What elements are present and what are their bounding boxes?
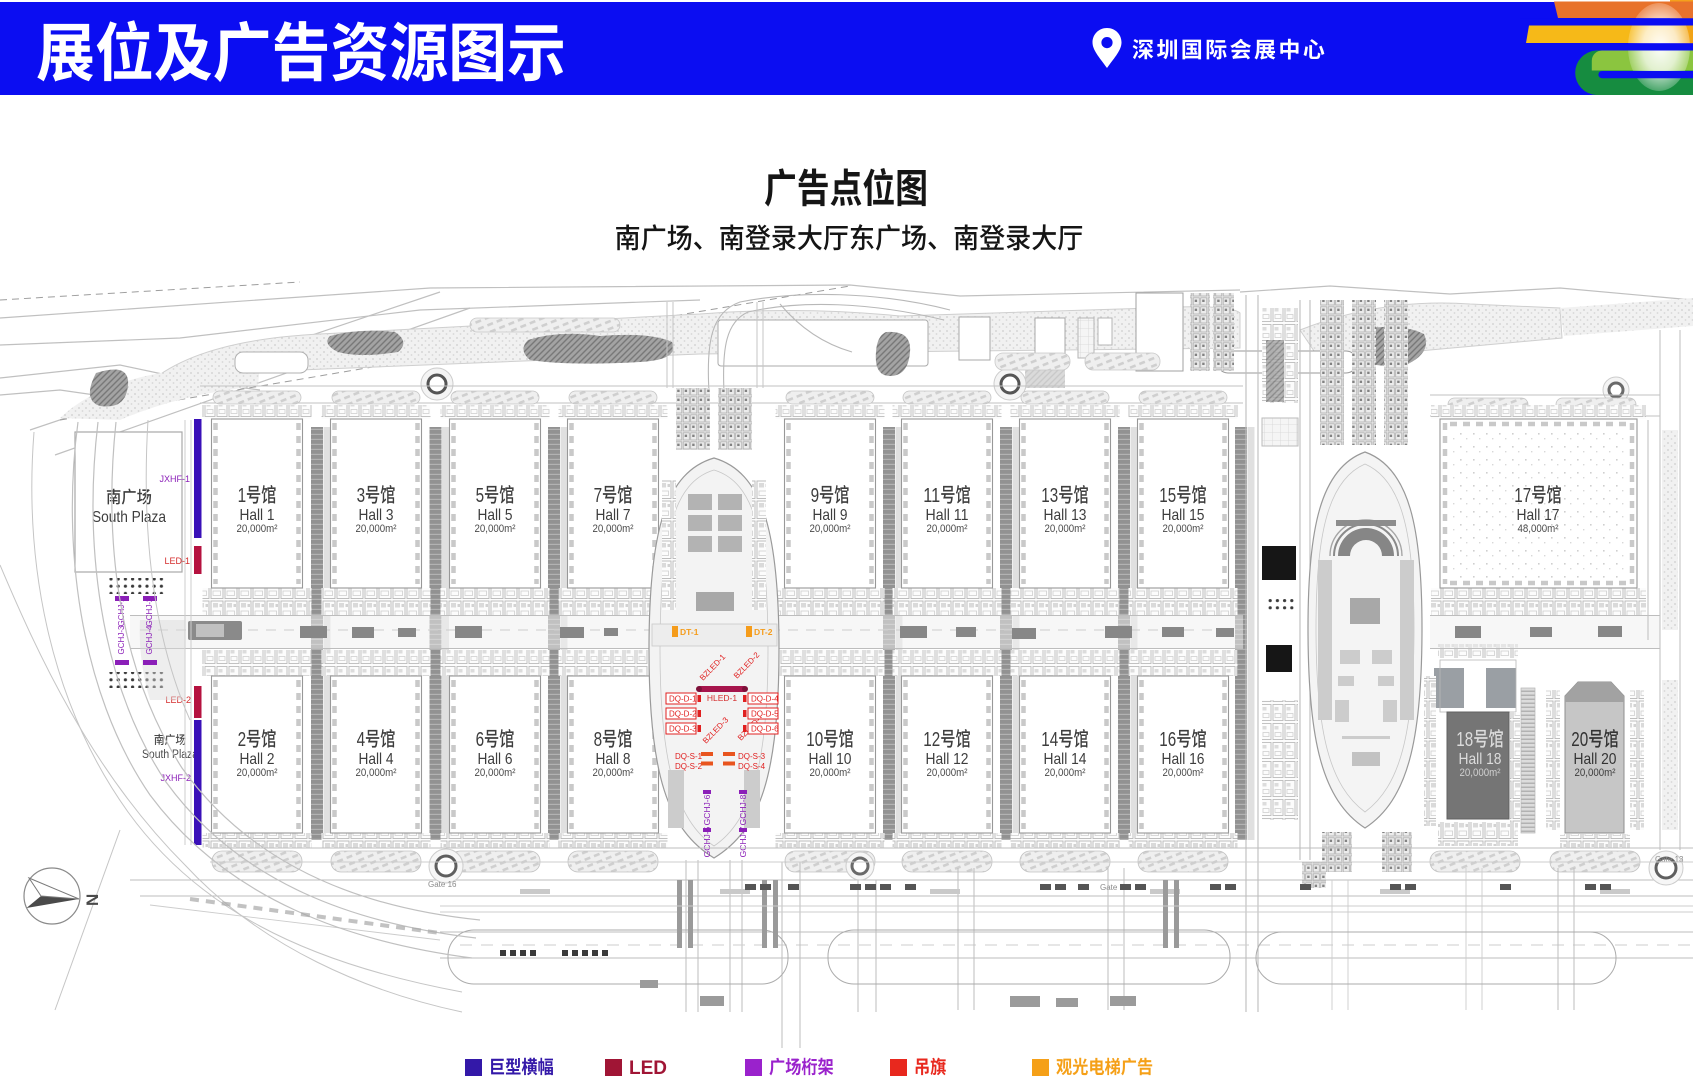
svg-text:7: 7 bbox=[594, 485, 603, 507]
svg-text:Hall 7: Hall 7 bbox=[596, 507, 631, 524]
svg-text:20,000m²: 20,000m² bbox=[356, 523, 397, 535]
svg-text:South Plaza: South Plaza bbox=[92, 509, 166, 526]
svg-text:20,000m²: 20,000m² bbox=[593, 523, 634, 535]
svg-text:Hall 13: Hall 13 bbox=[1044, 507, 1087, 524]
svg-text:20,000m²: 20,000m² bbox=[237, 523, 278, 535]
svg-text:20,000m²: 20,000m² bbox=[927, 523, 968, 535]
svg-text:Gate 16: Gate 16 bbox=[428, 880, 457, 889]
svg-text:GCHJ-8: GCHJ-8 bbox=[738, 794, 748, 825]
svg-text:DQ-D-1: DQ-D-1 bbox=[669, 695, 697, 704]
svg-text:GCHJ-7: GCHJ-7 bbox=[738, 826, 748, 857]
svg-text:DQ-S-3: DQ-S-3 bbox=[738, 752, 766, 761]
svg-text:Hall 8: Hall 8 bbox=[596, 751, 631, 768]
svg-text:Hall 16: Hall 16 bbox=[1162, 751, 1205, 768]
svg-text:South Plaza: South Plaza bbox=[142, 749, 199, 761]
svg-text:20: 20 bbox=[1571, 729, 1588, 751]
svg-text:DQ-D-4: DQ-D-4 bbox=[751, 695, 779, 704]
svg-text:Hall 12: Hall 12 bbox=[926, 751, 969, 768]
svg-text:Hall 5: Hall 5 bbox=[478, 507, 513, 524]
svg-text:20,000m²: 20,000m² bbox=[927, 767, 968, 779]
svg-text:HLED-1: HLED-1 bbox=[707, 693, 738, 703]
svg-text:14: 14 bbox=[1041, 729, 1058, 751]
svg-text:Hall 6: Hall 6 bbox=[478, 751, 513, 768]
svg-text:DQ-S-4: DQ-S-4 bbox=[738, 762, 766, 771]
svg-text:JXHF-1: JXHF-1 bbox=[159, 474, 190, 484]
svg-text:20,000m²: 20,000m² bbox=[1575, 767, 1616, 779]
svg-text:20,000m²: 20,000m² bbox=[237, 767, 278, 779]
svg-text:6: 6 bbox=[476, 729, 485, 751]
svg-text:Hall 2: Hall 2 bbox=[240, 751, 275, 768]
svg-text:N: N bbox=[83, 894, 102, 906]
svg-text:20,000m²: 20,000m² bbox=[356, 767, 397, 779]
svg-text:LED: LED bbox=[629, 1058, 667, 1079]
svg-text:13: 13 bbox=[1041, 485, 1058, 507]
svg-text:DQ-S-2: DQ-S-2 bbox=[675, 762, 703, 771]
svg-text:DQ-D-2: DQ-D-2 bbox=[669, 710, 697, 719]
svg-text:12: 12 bbox=[923, 729, 940, 751]
svg-text:Gate 13: Gate 13 bbox=[1655, 855, 1684, 864]
svg-text:Hall 15: Hall 15 bbox=[1162, 507, 1205, 524]
svg-text:Hall 11: Hall 11 bbox=[926, 507, 969, 524]
svg-text:GCHJ-3: GCHJ-3 bbox=[117, 625, 126, 654]
svg-text:2: 2 bbox=[238, 729, 247, 751]
svg-text:5: 5 bbox=[476, 485, 485, 507]
svg-text:20,000m²: 20,000m² bbox=[810, 523, 851, 535]
svg-text:20,000m²: 20,000m² bbox=[475, 523, 516, 535]
svg-text:9: 9 bbox=[811, 485, 820, 507]
svg-text:Hall 1: Hall 1 bbox=[240, 507, 275, 524]
svg-text:20,000m²: 20,000m² bbox=[593, 767, 634, 779]
svg-text:Hall 20: Hall 20 bbox=[1574, 751, 1617, 768]
svg-text:16: 16 bbox=[1159, 729, 1176, 751]
svg-text:4: 4 bbox=[357, 729, 366, 751]
svg-text:Hall 9: Hall 9 bbox=[813, 507, 848, 524]
svg-text:DQ-D-3: DQ-D-3 bbox=[669, 725, 697, 734]
svg-text:GCHJ-5: GCHJ-5 bbox=[702, 826, 712, 857]
svg-text:20,000m²: 20,000m² bbox=[1460, 767, 1501, 779]
svg-text:DT-2: DT-2 bbox=[754, 627, 773, 637]
svg-text:20,000m²: 20,000m² bbox=[1163, 767, 1204, 779]
svg-text:GCHJ-4: GCHJ-4 bbox=[145, 625, 154, 654]
svg-text:20,000m²: 20,000m² bbox=[475, 767, 516, 779]
svg-text:20,000m²: 20,000m² bbox=[810, 767, 851, 779]
svg-text:Hall 14: Hall 14 bbox=[1044, 751, 1087, 768]
svg-text:17: 17 bbox=[1514, 485, 1531, 507]
svg-text:10: 10 bbox=[806, 729, 823, 751]
svg-text:GCHJ-2: GCHJ-2 bbox=[145, 597, 154, 626]
svg-text:1: 1 bbox=[238, 485, 247, 507]
svg-text:3: 3 bbox=[357, 485, 366, 507]
svg-text:Hall 10: Hall 10 bbox=[809, 751, 852, 768]
svg-text:DQ-D-5: DQ-D-5 bbox=[751, 710, 779, 719]
svg-text:Hall 3: Hall 3 bbox=[359, 507, 394, 524]
svg-text:48,000m²: 48,000m² bbox=[1518, 523, 1559, 535]
svg-text:Hall 18: Hall 18 bbox=[1459, 751, 1502, 768]
svg-text:18: 18 bbox=[1456, 729, 1473, 751]
svg-text:15: 15 bbox=[1159, 485, 1176, 507]
svg-text:LED-1: LED-1 bbox=[164, 556, 190, 566]
svg-text:GCHJ-6: GCHJ-6 bbox=[702, 794, 712, 825]
svg-text:11: 11 bbox=[923, 485, 940, 507]
svg-text:20,000m²: 20,000m² bbox=[1163, 523, 1204, 535]
svg-text:20,000m²: 20,000m² bbox=[1045, 767, 1086, 779]
svg-text:8: 8 bbox=[594, 729, 603, 751]
svg-text:DQ-D-6: DQ-D-6 bbox=[751, 725, 779, 734]
svg-text:DT-1: DT-1 bbox=[680, 627, 699, 637]
svg-text:DQ-S-1: DQ-S-1 bbox=[675, 752, 703, 761]
svg-text:20,000m²: 20,000m² bbox=[1045, 523, 1086, 535]
svg-text:Hall 4: Hall 4 bbox=[359, 751, 394, 768]
svg-text:Hall 17: Hall 17 bbox=[1517, 507, 1560, 524]
